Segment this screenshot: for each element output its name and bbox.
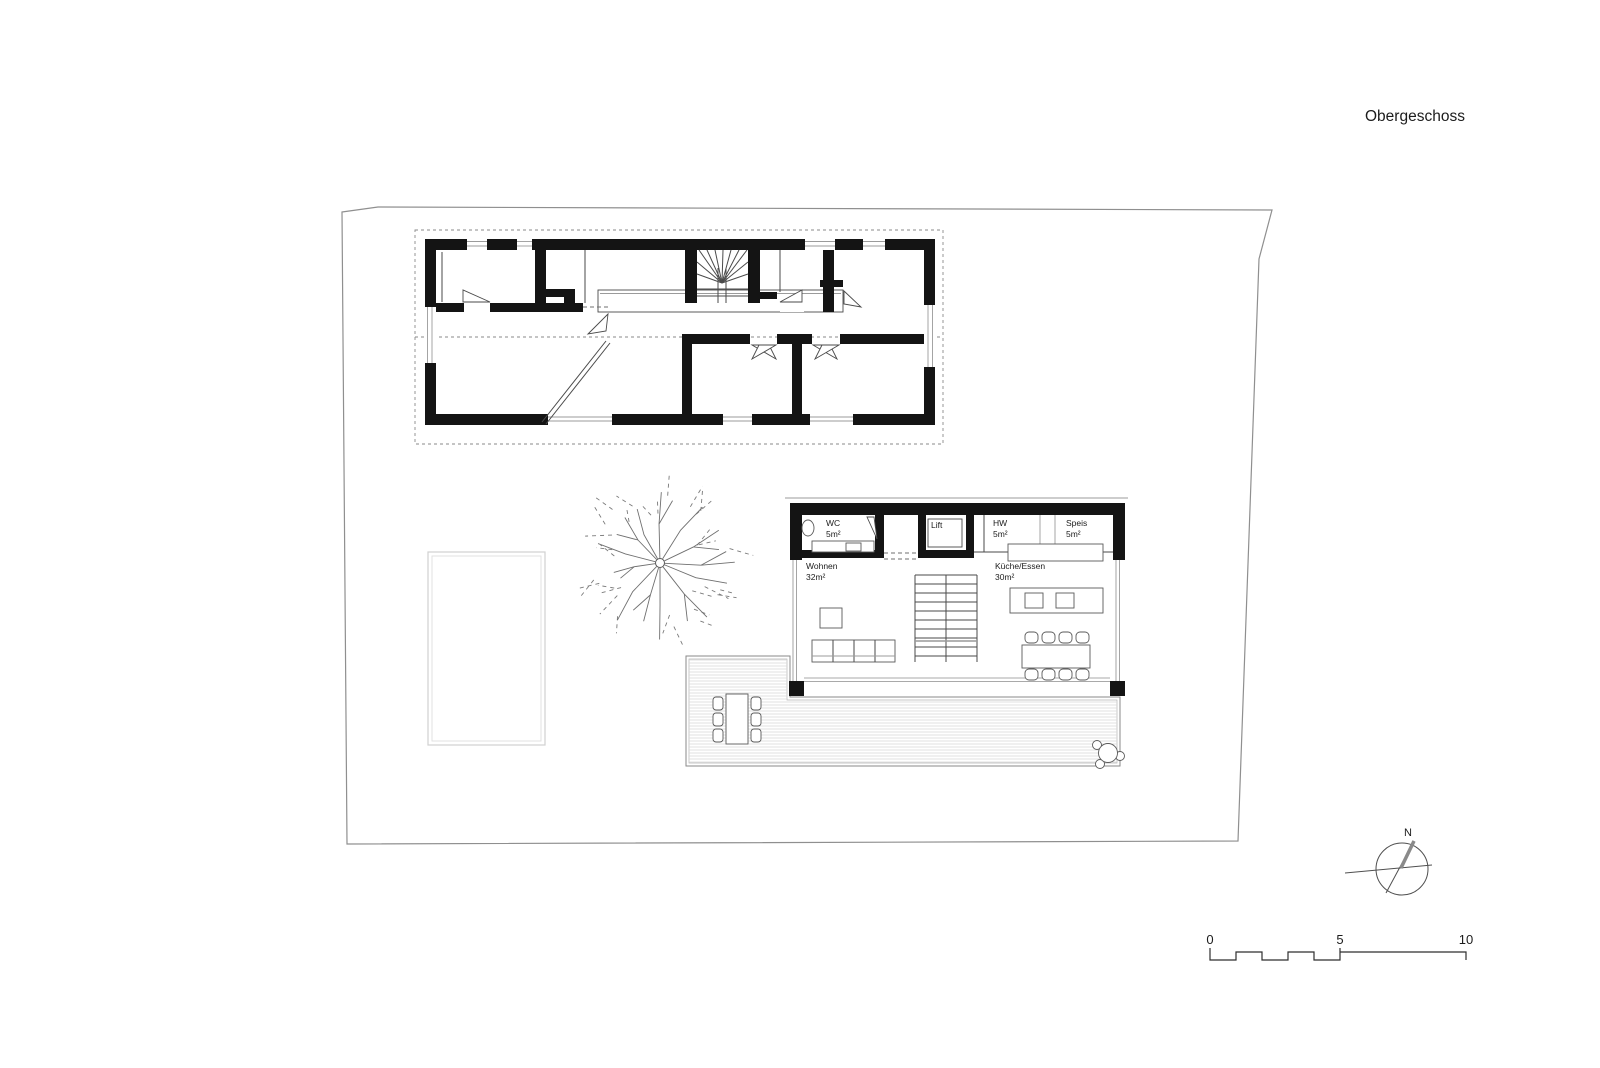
- dining-set: [1022, 632, 1090, 680]
- room-label-wohnen: Wohnen: [806, 561, 838, 571]
- stair: [915, 575, 977, 662]
- room-label-kueche-essen: Küche/Essen: [995, 561, 1045, 571]
- scale-tick-5: 5: [1336, 932, 1343, 947]
- tree-trunk: [656, 559, 665, 568]
- sink: [1025, 593, 1043, 608]
- room-area-wohnen: 32m²: [806, 572, 826, 582]
- page-title: Obergeschoss: [1365, 108, 1465, 125]
- room-label-speis: Speis: [1066, 518, 1087, 528]
- wc-sink: [846, 543, 861, 551]
- room-area-hw: 5m²: [993, 529, 1008, 539]
- room-label-lift: Lift: [931, 520, 943, 530]
- kitchen-island: [1010, 588, 1103, 613]
- living-furniture: [812, 608, 895, 662]
- wc-counter: [812, 541, 874, 552]
- room-label-hw: HW: [993, 518, 1007, 528]
- pantry-counter: [1008, 544, 1103, 561]
- round-table: [1099, 744, 1118, 763]
- hob: [1056, 593, 1074, 608]
- windows: [425, 239, 935, 425]
- scale-tick-10: 10: [1459, 932, 1473, 947]
- north-compass-icon: N: [1345, 827, 1432, 895]
- scale-tick-0: 0: [1206, 932, 1213, 947]
- ground-floor-plan: WC 5m² Lift HW 5m² Speis 5m² Wohnen 32m²…: [785, 498, 1128, 696]
- room-label-wc: WC: [826, 518, 840, 528]
- pool: [428, 552, 545, 745]
- scale-bar: 0 5 10: [1206, 932, 1473, 960]
- upper-floor-plan: [415, 230, 943, 444]
- side-table: [820, 608, 842, 628]
- corner-column: [789, 681, 804, 696]
- interior-walls: [436, 250, 924, 414]
- room-area-speis: 5m²: [1066, 529, 1081, 539]
- site-plan-drawing: Obergeschoss: [0, 0, 1600, 1068]
- room-area-kueche-essen: 30m²: [995, 572, 1015, 582]
- corner-column: [1110, 681, 1125, 696]
- room-area-wc: 5m²: [826, 529, 841, 539]
- void-railing: [542, 341, 610, 424]
- toilet: [802, 520, 814, 536]
- tree: [579, 474, 753, 647]
- outer-walls: [425, 239, 935, 425]
- outdoor-table: [726, 694, 748, 744]
- tree-branch-lines: [598, 492, 735, 639]
- north-label: N: [1404, 827, 1412, 839]
- lift-shaft: [918, 515, 974, 558]
- outdoor-dining-set: [713, 694, 761, 744]
- gallery-bridge: [598, 290, 843, 312]
- dining-table: [1022, 645, 1090, 668]
